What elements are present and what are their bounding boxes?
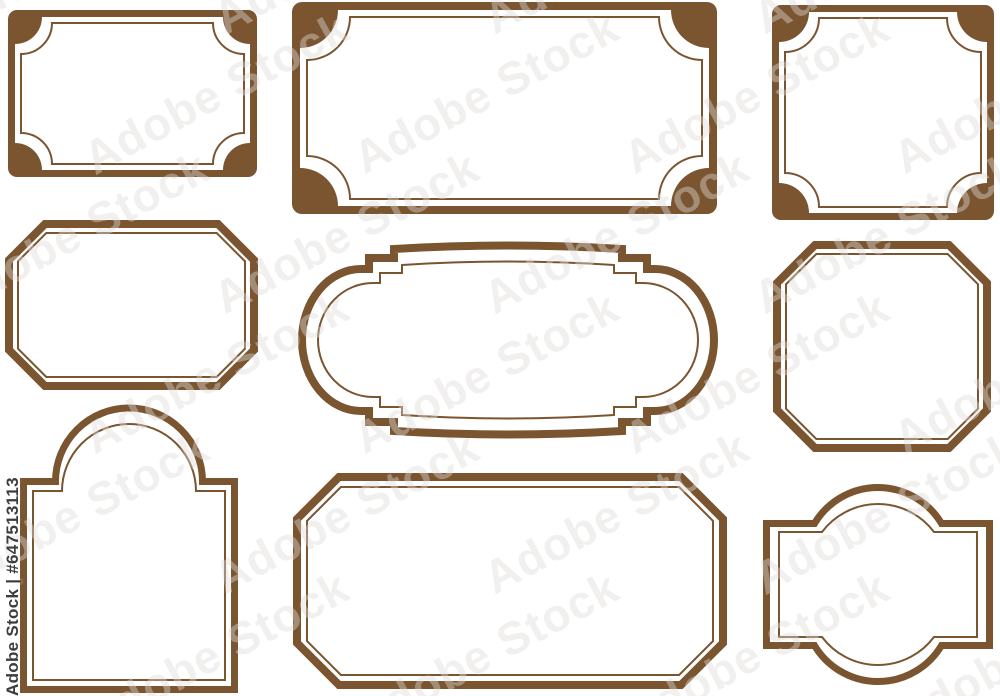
frames-graphic	[0, 0, 1000, 696]
frame-octagon-wide	[297, 477, 723, 685]
frame-ticket-rectangle-small	[8, 10, 257, 177]
frame-badge-plaque	[767, 487, 990, 681]
frame-ticket-square	[772, 5, 994, 220]
frame-octagon-rectangle	[9, 224, 254, 386]
frame-arch-frame	[24, 408, 235, 689]
frame-ornate-oval-label	[302, 246, 714, 435]
watermark-credit: Adobe Stock | #647513113	[3, 448, 23, 696]
frame-octagon-square	[777, 245, 987, 448]
stock-image-canvas: Adobe StockAdobe StockAdobe StockAdobe S…	[0, 0, 1000, 696]
frame-ticket-rectangle-large	[292, 2, 717, 214]
